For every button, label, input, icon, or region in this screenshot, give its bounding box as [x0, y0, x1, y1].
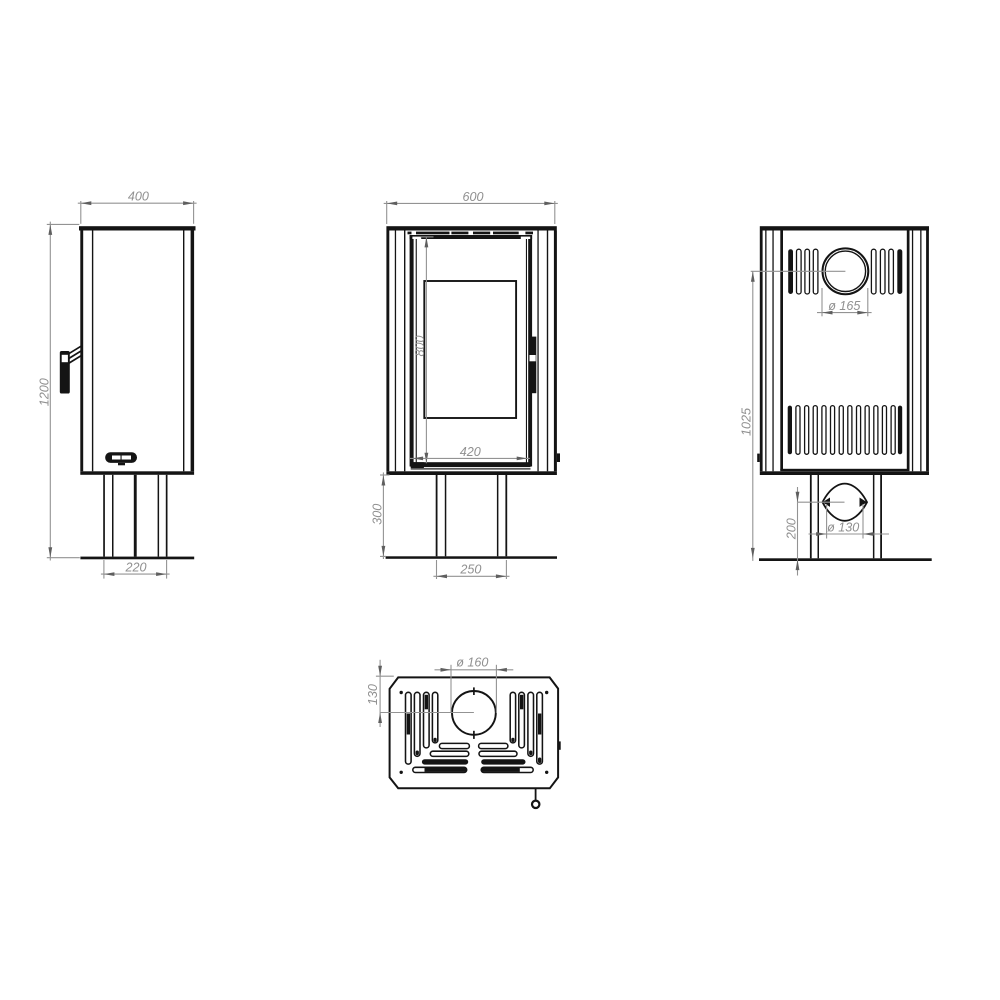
- svg-text:800: 800: [413, 335, 427, 356]
- svg-text:1200: 1200: [38, 378, 52, 406]
- svg-text:1025: 1025: [740, 407, 754, 436]
- svg-text:ø 165: ø 165: [828, 299, 861, 313]
- svg-text:400: 400: [128, 189, 149, 203]
- svg-text:300: 300: [371, 504, 385, 525]
- svg-text:ø 160: ø 160: [456, 655, 488, 669]
- svg-text:250: 250: [459, 563, 481, 577]
- svg-text:ø 130: ø 130: [827, 521, 859, 535]
- svg-text:220: 220: [124, 561, 146, 575]
- svg-text:600: 600: [462, 190, 483, 204]
- svg-text:130: 130: [366, 684, 380, 705]
- svg-text:420: 420: [460, 445, 481, 459]
- svg-text:200: 200: [784, 518, 798, 540]
